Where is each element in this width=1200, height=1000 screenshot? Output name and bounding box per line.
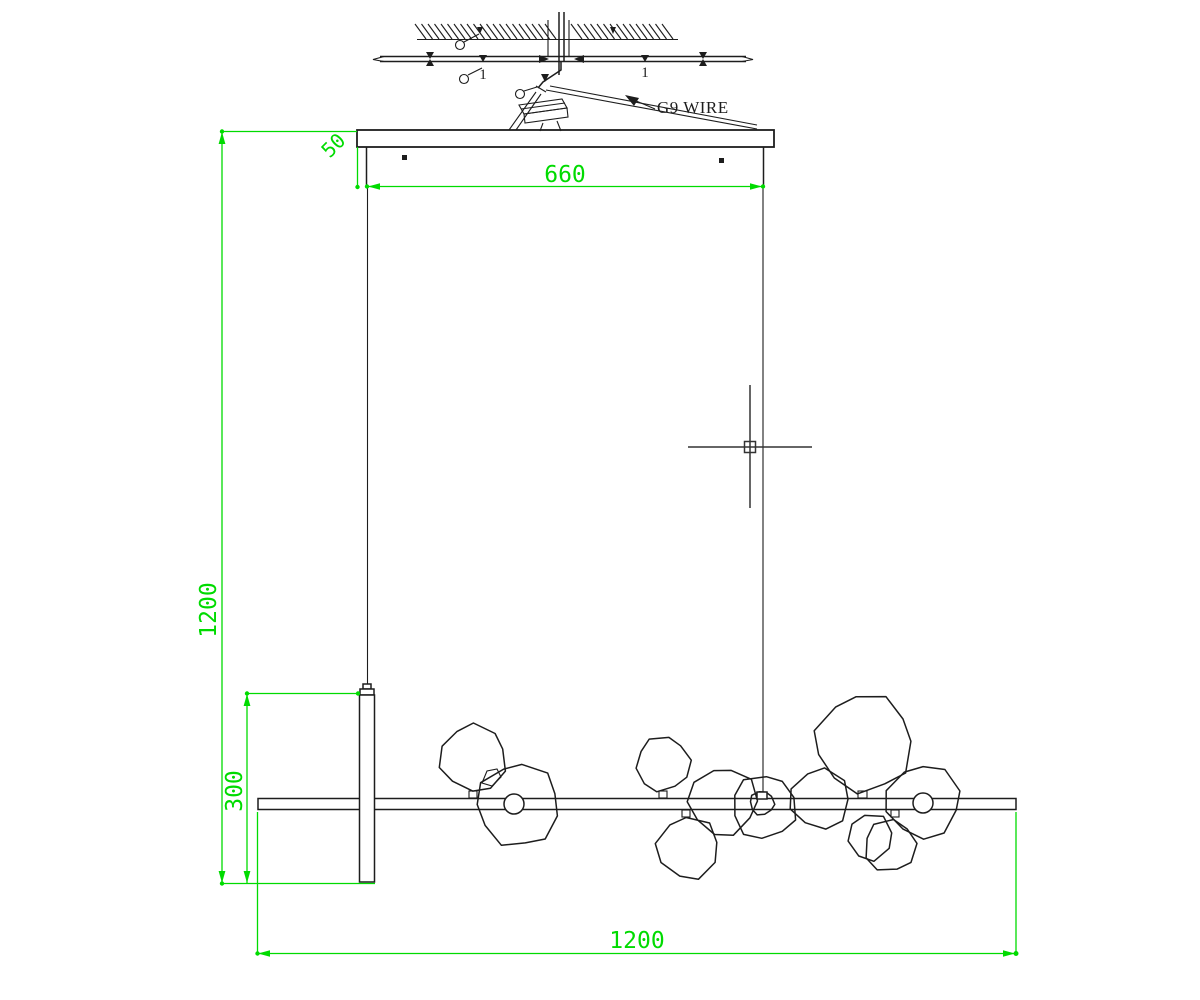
bubble-glass-outline	[735, 777, 796, 839]
dim-end-stem-height: 300	[222, 770, 248, 812]
bubble-glass-outline	[866, 820, 917, 870]
hatch-line	[487, 24, 498, 39]
hatch-line	[428, 24, 439, 39]
wire-callout: G9 WIRE	[625, 95, 729, 117]
hatch-line	[422, 24, 433, 39]
rod-cap	[360, 689, 374, 695]
hatch-line	[630, 24, 641, 39]
wire-connector	[757, 792, 767, 799]
bubble-glass-outline	[439, 723, 505, 791]
hatch-line	[500, 24, 511, 39]
bubble-glass-outline	[687, 770, 757, 835]
hatch-line	[493, 24, 504, 39]
glass-bubbles	[439, 697, 960, 880]
dim-fixture-length: 1200	[609, 928, 664, 954]
bubble-stem	[659, 791, 667, 798]
hatch-line	[532, 24, 543, 39]
bar-sphere	[504, 794, 524, 814]
suspension-wires	[368, 186, 764, 793]
end-stem-rod	[360, 695, 375, 882]
fixture-body	[258, 684, 1016, 882]
hatch-line	[519, 24, 530, 39]
wire-callout-label: G9 WIRE	[657, 98, 729, 117]
dim-suspension-height: 1200	[196, 582, 222, 637]
hatch-line	[435, 24, 446, 39]
hatch-line	[513, 24, 524, 39]
ceiling-mark-right: 1	[641, 65, 649, 81]
dim-canopy-drop: 50	[316, 128, 350, 162]
hatch-line	[591, 24, 602, 39]
hatch-line	[597, 24, 608, 39]
drawing-viewport[interactable]: 1 1 G9 WIRE	[0, 0, 1200, 1000]
hatch-line	[461, 24, 472, 39]
hatch-line	[649, 24, 660, 39]
canopy-screw	[719, 158, 724, 163]
hatch-line	[571, 24, 582, 39]
hatch-line	[643, 24, 654, 39]
bubble-stem	[682, 810, 690, 817]
hatch-line	[656, 24, 667, 39]
hatch-line	[617, 24, 628, 39]
hatch-line	[623, 24, 634, 39]
dimensions: 660 50 1200 300 1200	[196, 128, 1019, 957]
ceiling-structure: 1 1	[373, 12, 753, 99]
bubble-stem	[891, 810, 899, 817]
fastener-mark	[699, 52, 707, 66]
cable-gripper-assembly	[509, 62, 757, 131]
hatch-line	[636, 24, 647, 39]
hatch-line	[610, 24, 621, 39]
hatch-line	[441, 24, 452, 39]
ceiling-hatch	[415, 24, 673, 39]
canopy-top-plate	[357, 130, 774, 147]
crosshair-cursor	[688, 385, 812, 508]
dim-canopy-width: 660	[544, 162, 586, 188]
hatch-line	[584, 24, 595, 39]
bubble-glass-outline	[655, 818, 717, 880]
hatch-line	[506, 24, 517, 39]
hatch-line	[526, 24, 537, 39]
canopy-screw	[402, 155, 407, 160]
hatch-line	[448, 24, 459, 39]
cad-canvas[interactable]: 1 1 G9 WIRE	[0, 0, 1200, 1000]
bar-sphere	[913, 793, 933, 813]
hatch-line	[545, 24, 556, 39]
screw-symbol	[456, 34, 538, 99]
fastener-mark	[426, 52, 434, 66]
bubble-glass-outline	[636, 737, 691, 791]
hatch-line	[467, 24, 478, 39]
bubble-stem	[469, 791, 477, 798]
hatch-line	[415, 24, 426, 39]
hatch-line	[578, 24, 589, 39]
hatch-line	[454, 24, 465, 39]
hatch-line	[480, 24, 491, 39]
hatch-line	[662, 24, 673, 39]
